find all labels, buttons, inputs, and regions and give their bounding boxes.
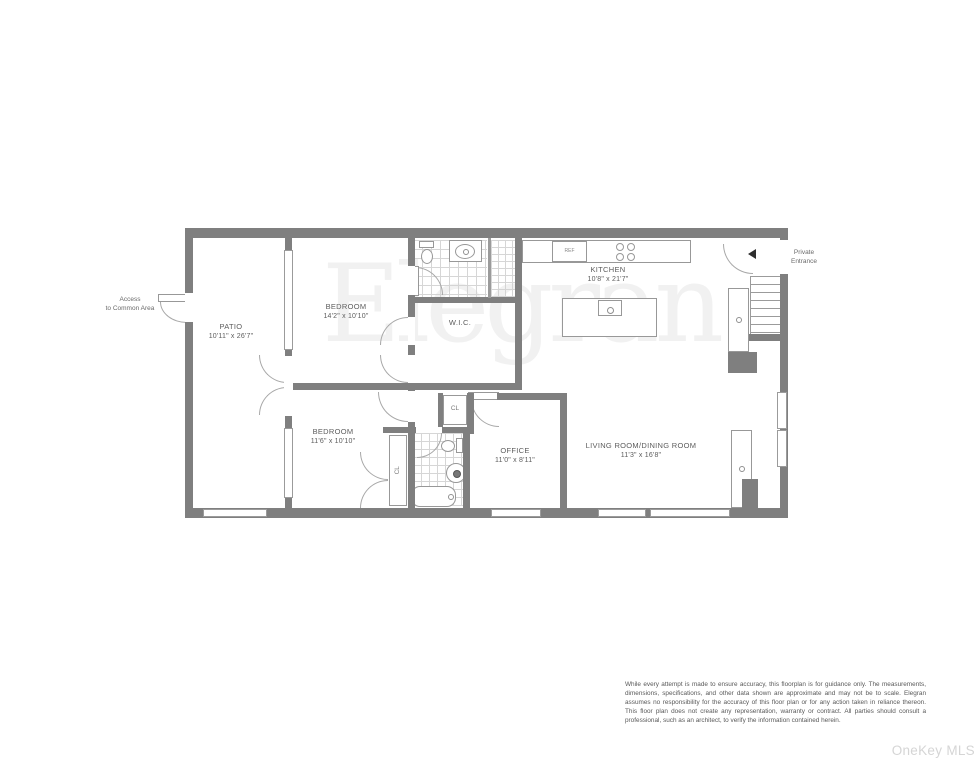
room-label-bedroom2: BEDROOM 11'6" x 10'10": [293, 427, 373, 447]
room-dims: 14'2" x 10'10": [306, 312, 386, 322]
door-arc: [471, 399, 499, 427]
door-opening: [416, 427, 442, 433]
tub-faucet-icon: [448, 494, 454, 500]
wall: [749, 334, 781, 341]
onekey-mls-watermark: OneKey MLS: [815, 743, 975, 758]
room-label-office: OFFICE 11'0" x 8'11": [475, 446, 555, 466]
wall: [292, 383, 412, 390]
room-dims: 11'0" x 8'11": [475, 456, 555, 466]
stove-burner-icon: [627, 253, 635, 261]
window: [491, 509, 541, 517]
wall: [780, 238, 788, 508]
room-dims: 10'11" x 26'7": [192, 332, 270, 342]
kitchen-counter: [522, 240, 691, 263]
sink-faucet-icon: [463, 249, 469, 255]
door-arc: [259, 387, 287, 415]
wall: [185, 228, 788, 238]
room-label-patio: PATIO 10'11" x 26'7": [192, 322, 270, 342]
access-common-area-label: Access to Common Area: [98, 296, 162, 313]
wall: [515, 238, 522, 390]
door-arc: [380, 355, 408, 383]
door-opening: [284, 356, 293, 416]
room-name: W.I.C.: [430, 318, 490, 328]
room-name: BEDROOM: [306, 302, 386, 312]
closet-knob-icon: [736, 317, 742, 323]
wall: [463, 433, 470, 508]
toilet-bowl: [421, 249, 433, 264]
entrance-line2: Entrance: [786, 258, 822, 267]
built-in-knob-icon: [739, 466, 745, 472]
door-opening: [408, 391, 415, 422]
stove-burner-icon: [627, 243, 635, 251]
door-opening: [408, 355, 415, 383]
shower-tile-floor: [491, 240, 515, 297]
floorplan-image: Elegran: [0, 0, 978, 768]
toilet-tank: [419, 241, 434, 248]
wall: [728, 352, 757, 373]
wall: [408, 383, 522, 390]
wall: [742, 479, 758, 509]
door-arc: [378, 392, 408, 422]
wall: [185, 238, 193, 518]
door-opening: [408, 266, 415, 295]
room-dims: 11'6" x 10'10": [293, 437, 373, 447]
door-opening: [408, 317, 415, 345]
room-name: KITCHEN: [568, 265, 648, 275]
window: [598, 509, 646, 517]
refrigerator-label: REF: [552, 248, 587, 254]
room-dims: 10'8" x 21'7": [568, 275, 648, 285]
door-arc: [259, 355, 287, 383]
toilet-tank: [456, 438, 463, 453]
staircase: [750, 276, 780, 334]
window: [650, 509, 730, 517]
door-arc: [360, 480, 388, 508]
stove-burner-icon: [616, 243, 624, 251]
room-label-living-dining: LIVING ROOM/DINING ROOM 11'3" x 16'8": [566, 441, 716, 461]
stove-burner-icon: [616, 253, 624, 261]
room-name: BEDROOM: [293, 427, 373, 437]
closet-label: CL: [394, 460, 403, 480]
sink-drain-icon: [453, 470, 461, 478]
door-arc: [360, 452, 388, 480]
disclaimer-text: While every attempt is made to ensure ac…: [625, 680, 926, 725]
room-name: OFFICE: [475, 446, 555, 456]
room-label-kitchen: KITCHEN 10'8" x 21'7": [568, 265, 648, 285]
toilet-bowl: [441, 440, 455, 452]
entrance-door-marker: [748, 249, 756, 259]
room-dims: 11'3" x 16'8": [566, 451, 716, 461]
island-faucet-icon: [607, 307, 614, 314]
wall: [497, 393, 567, 400]
entrance-line1: Private: [786, 249, 822, 258]
room-name: PATIO: [192, 322, 270, 332]
door-opening: [185, 293, 193, 322]
closet-label: CL: [443, 405, 467, 414]
access-line2: to Common Area: [98, 305, 162, 314]
glass-panel: [284, 250, 293, 350]
window: [203, 509, 267, 517]
access-line1: Access: [98, 296, 162, 305]
wall: [408, 297, 521, 303]
glass-panel: [284, 428, 293, 498]
window: [777, 392, 787, 429]
private-entrance-label: Private Entrance: [786, 249, 822, 266]
wall: [488, 238, 491, 298]
window: [777, 430, 787, 467]
room-label-bedroom1: BEDROOM 14'2" x 10'10": [306, 302, 386, 322]
door-leaf: [158, 294, 187, 302]
room-label-wic: W.I.C.: [430, 318, 490, 328]
door-arc: [160, 302, 187, 323]
room-name: LIVING ROOM/DINING ROOM: [566, 441, 716, 451]
